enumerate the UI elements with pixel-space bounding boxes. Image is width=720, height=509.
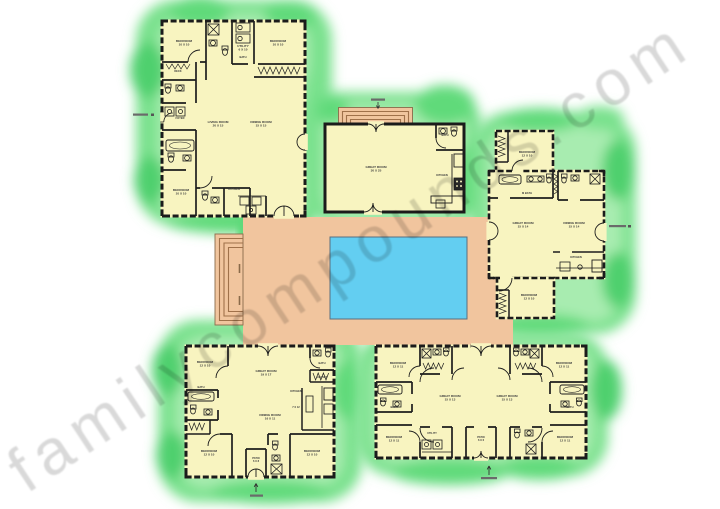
svg-text:BATH: BATH	[318, 361, 325, 365]
svg-text:FOYER: FOYER	[176, 116, 185, 120]
svg-text:KITCHEN: KITCHEN	[290, 389, 302, 393]
svg-text:PATIO6 X 6: PATIO6 X 6	[477, 435, 485, 442]
svg-text:BATH: BATH	[566, 405, 573, 409]
svg-text:KITCHEN: KITCHEN	[228, 187, 240, 191]
svg-text:M BATH: M BATH	[522, 191, 532, 195]
svg-text:BATH: BATH	[390, 405, 397, 409]
svg-text:UTILITY: UTILITY	[427, 431, 437, 435]
svg-text:CLOSET: CLOSET	[317, 375, 328, 379]
svg-text:KITCHEN: KITCHEN	[570, 255, 582, 259]
svg-text:DECK: DECK	[174, 69, 181, 73]
svg-text:PATIO6 X 8: PATIO6 X 8	[252, 456, 260, 463]
svg-text:7 X 12: 7 X 12	[292, 405, 300, 409]
svg-text:BATH: BATH	[441, 133, 448, 137]
svg-text:BATH: BATH	[239, 55, 246, 59]
